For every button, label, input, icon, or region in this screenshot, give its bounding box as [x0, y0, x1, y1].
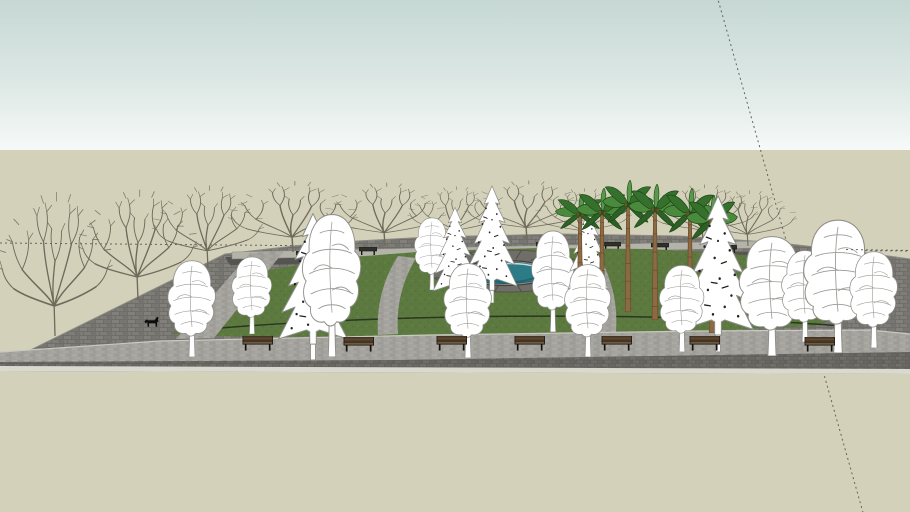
- sky: [0, 0, 910, 152]
- sky-gradient: [0, 0, 910, 152]
- model-viewport[interactable]: [0, 0, 910, 512]
- scene-canvas[interactable]: [0, 0, 910, 512]
